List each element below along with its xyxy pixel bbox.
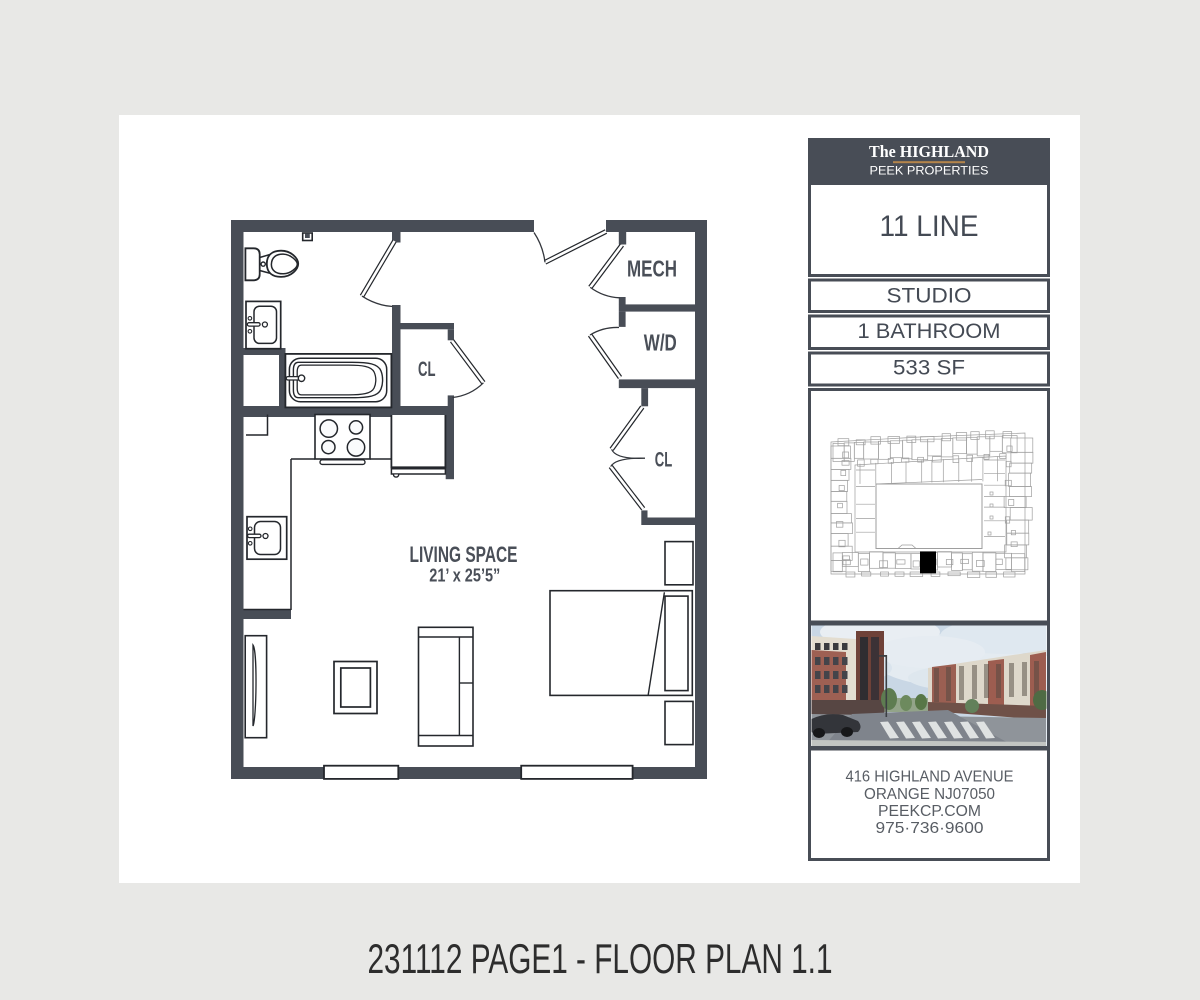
- svg-text:1 BATHROOM: 1 BATHROOM: [858, 320, 1001, 343]
- svg-text:The HIGHLAND: The HIGHLAND: [869, 142, 989, 161]
- svg-text:W/D: W/D: [644, 330, 677, 356]
- svg-text:ORANGE NJ07050: ORANGE NJ07050: [864, 786, 995, 803]
- svg-text:MECH: MECH: [627, 256, 677, 282]
- svg-text:416 HIGHLAND AVENUE: 416 HIGHLAND AVENUE: [846, 769, 1014, 786]
- svg-text:21’ x 25’5”: 21’ x 25’5”: [429, 566, 500, 586]
- svg-text:533 SF: 533 SF: [893, 357, 965, 380]
- svg-text:CL: CL: [655, 449, 673, 472]
- svg-text:975·736·9600: 975·736·9600: [876, 820, 984, 837]
- svg-text:231112 PAGE1 - FLOOR PLAN 1.1: 231112 PAGE1 - FLOOR PLAN 1.1: [368, 935, 833, 982]
- svg-text:11 LINE: 11 LINE: [880, 210, 979, 243]
- svg-text:LIVING SPACE: LIVING SPACE: [410, 542, 518, 567]
- svg-text:CL: CL: [418, 358, 436, 381]
- svg-text:STUDIO: STUDIO: [887, 285, 972, 308]
- svg-text:PEEK PROPERTIES: PEEK PROPERTIES: [870, 166, 989, 178]
- svg-text:PEEKCP.COM: PEEKCP.COM: [878, 803, 981, 820]
